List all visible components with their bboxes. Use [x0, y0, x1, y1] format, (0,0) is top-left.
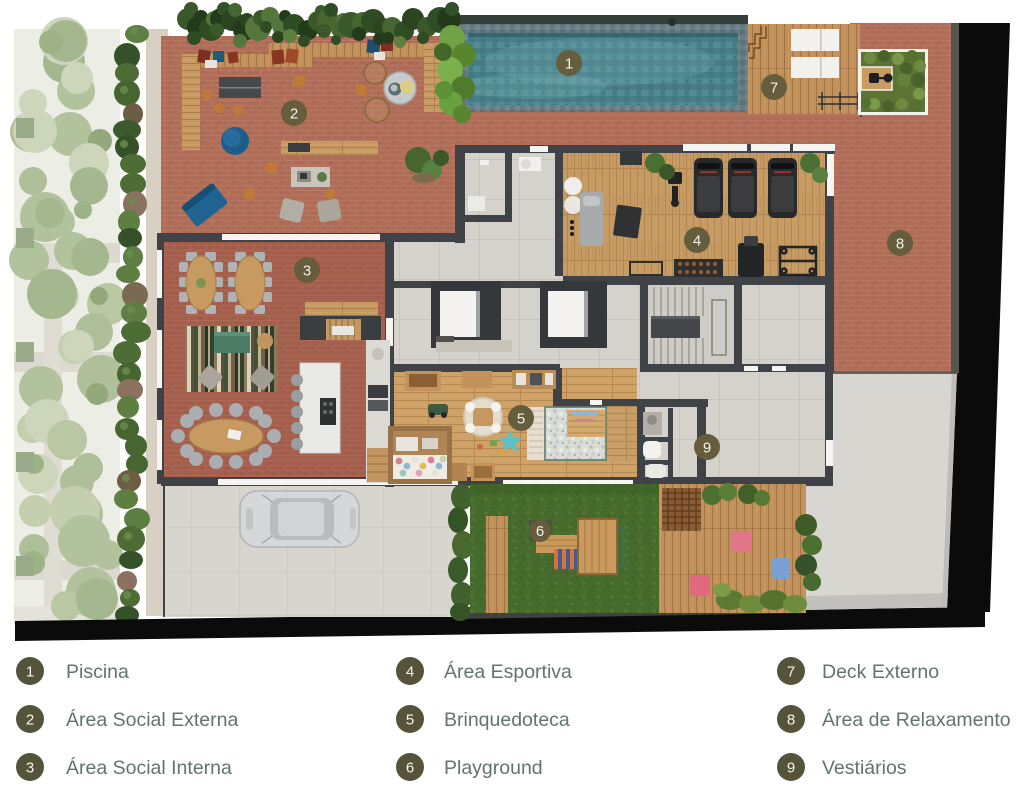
svg-text:3: 3	[26, 760, 34, 777]
svg-text:Playground: Playground	[444, 757, 543, 779]
svg-text:9: 9	[787, 760, 795, 777]
svg-text:9: 9	[703, 440, 711, 457]
svg-text:Área Esportiva: Área Esportiva	[444, 660, 572, 683]
svg-text:5: 5	[517, 411, 525, 428]
svg-text:2: 2	[290, 106, 298, 123]
svg-text:6: 6	[536, 523, 544, 540]
svg-text:8: 8	[896, 236, 904, 253]
svg-text:Área Social Externa: Área Social Externa	[66, 708, 238, 731]
svg-text:Piscina: Piscina	[66, 661, 129, 683]
svg-text:8: 8	[787, 712, 795, 729]
svg-text:3: 3	[303, 263, 311, 280]
svg-text:4: 4	[406, 664, 414, 681]
svg-text:1: 1	[565, 56, 573, 73]
svg-text:1: 1	[26, 664, 34, 681]
svg-text:Vestiários: Vestiários	[822, 757, 907, 779]
svg-text:Deck Externo: Deck Externo	[822, 661, 939, 683]
svg-text:5: 5	[406, 712, 414, 729]
svg-text:7: 7	[787, 664, 795, 681]
svg-text:Brinquedoteca: Brinquedoteca	[444, 709, 570, 731]
svg-text:4: 4	[693, 233, 701, 250]
svg-text:7: 7	[770, 80, 778, 97]
svg-text:Área Social Interna: Área Social Interna	[66, 756, 232, 779]
svg-text:2: 2	[26, 712, 34, 729]
svg-text:6: 6	[406, 760, 414, 777]
svg-text:Área de Relaxamento: Área de Relaxamento	[822, 708, 1011, 731]
